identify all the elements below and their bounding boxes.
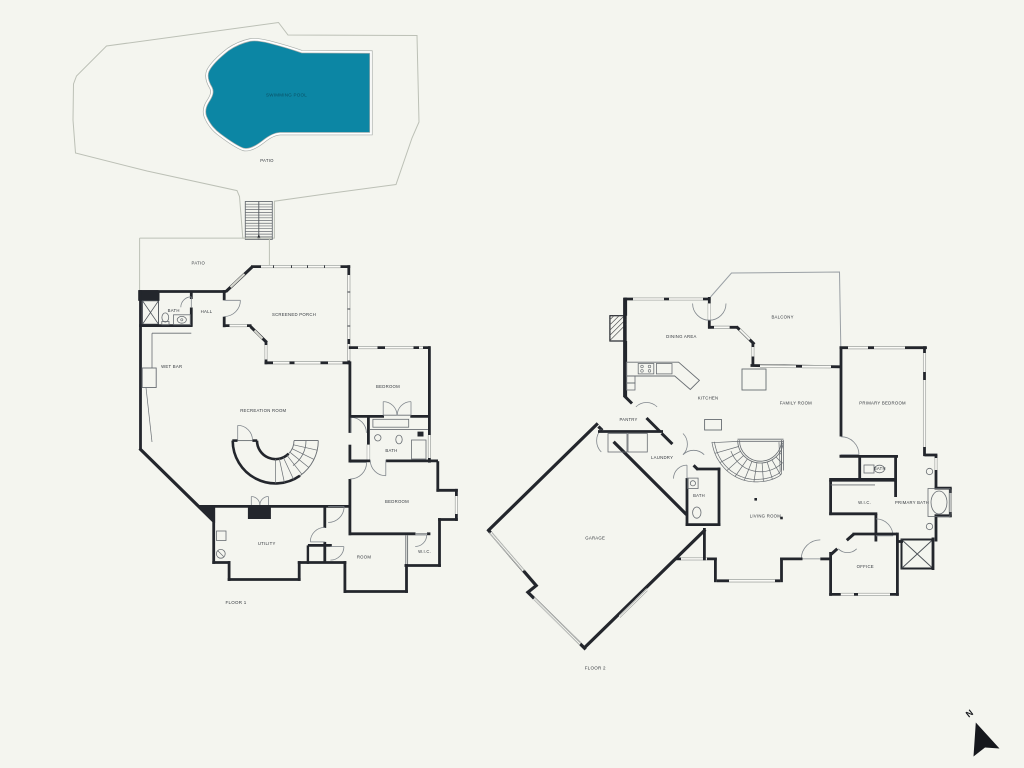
svg-text:WET BAR: WET BAR [161,364,182,369]
svg-text:BEDROOM: BEDROOM [376,384,400,389]
svg-text:BATH: BATH [168,308,180,313]
svg-text:FLOOR 2: FLOOR 2 [585,666,606,671]
svg-text:SWIMMING POOL: SWIMMING POOL [266,93,307,98]
svg-text:FAMILY ROOM: FAMILY ROOM [780,401,812,406]
svg-text:PRIMARY BEDROOM: PRIMARY BEDROOM [859,401,906,406]
svg-text:BEDROOM: BEDROOM [385,499,409,504]
svg-text:OFFICE: OFFICE [857,564,874,569]
svg-text:LAUNDRY: LAUNDRY [651,455,673,460]
svg-text:W.I.C.: W.I.C. [418,549,431,554]
svg-text:BALCONY: BALCONY [771,315,793,320]
svg-text:SCREENED PORCH: SCREENED PORCH [272,312,316,317]
svg-text:LIVING ROOM: LIVING ROOM [750,514,782,519]
svg-text:FLOOR 1: FLOOR 1 [225,600,246,605]
svg-text:UTILITY: UTILITY [258,541,276,546]
svg-text:ROOM: ROOM [357,555,372,560]
svg-text:W.I.C.: W.I.C. [858,500,871,505]
svg-text:HALL: HALL [201,309,213,314]
svg-text:PATIO: PATIO [192,261,206,266]
svg-text:BATH: BATH [874,466,886,471]
svg-text:BATH: BATH [693,493,705,498]
svg-text:DINING AREA: DINING AREA [666,334,696,339]
svg-text:PATIO: PATIO [260,158,274,163]
svg-text:GARAGE: GARAGE [585,535,605,540]
svg-text:BATH: BATH [385,448,397,453]
svg-text:PANTRY: PANTRY [619,417,637,422]
svg-text:RECREATION ROOM: RECREATION ROOM [240,408,286,413]
svg-text:KITCHEN: KITCHEN [698,396,719,401]
svg-text:PRIMARY BATH: PRIMARY BATH [895,500,929,505]
